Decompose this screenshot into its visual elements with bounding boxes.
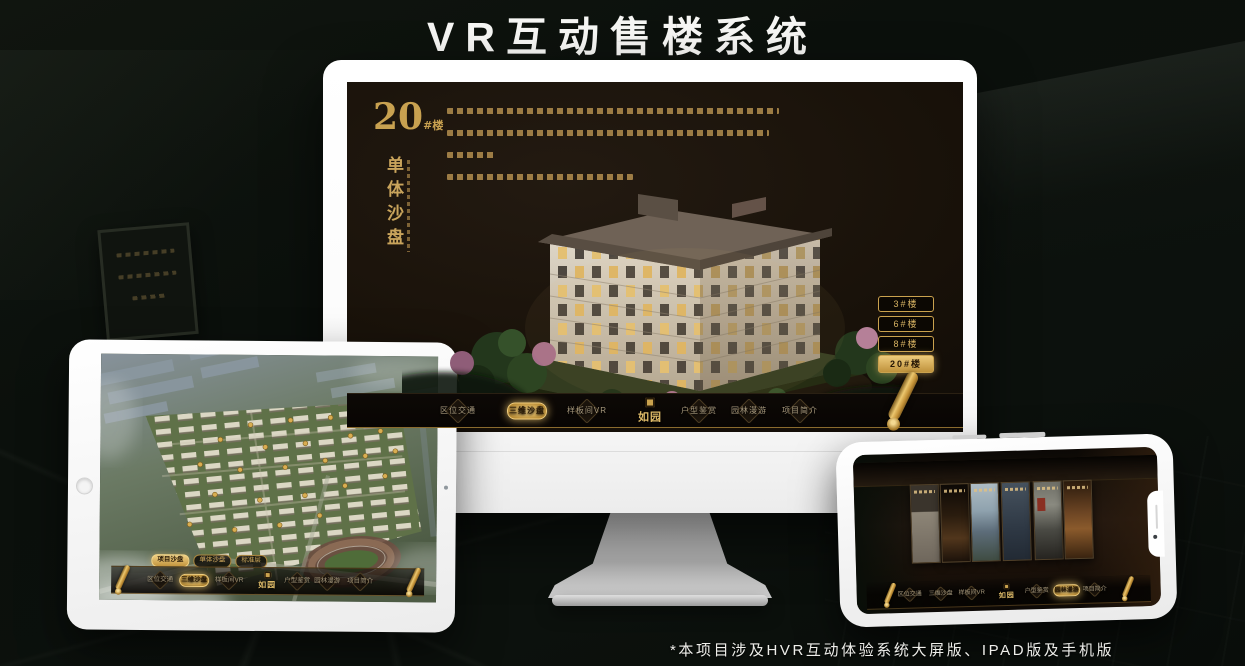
brand-seal-icon xyxy=(645,397,655,407)
gallery-panel[interactable] xyxy=(970,482,1001,562)
camera-icon xyxy=(1153,535,1157,539)
nav-item-label: 项目简介 xyxy=(347,575,373,589)
intro-text-line xyxy=(447,108,779,114)
footnote: *本项目涉及HVR互动体验系统大屏版、IPAD版及手机版 xyxy=(670,639,1114,660)
brand-logo[interactable]: 如园 xyxy=(998,583,1014,600)
nav-item-label: 三维沙盘 xyxy=(509,402,545,420)
nav-item-label: 项目简介 xyxy=(1083,583,1107,596)
panel-caption xyxy=(1067,486,1088,490)
nav-item-label: 户型鉴赏 xyxy=(1025,585,1049,598)
plaque-text-line xyxy=(116,249,174,258)
brand-name: 如园 xyxy=(638,408,662,424)
nav-item-label: 样板间VR xyxy=(567,402,607,420)
red-seal-tag xyxy=(1037,498,1045,511)
building-render-illustration xyxy=(402,148,907,423)
plaque-text-line xyxy=(132,293,166,300)
gallery-panel[interactable] xyxy=(910,484,941,564)
plaque-text-line xyxy=(118,271,176,280)
gallery-panel[interactable] xyxy=(940,483,971,563)
nav-item-project-intro[interactable]: 项目简介 xyxy=(1083,583,1107,596)
nav-item-showroom-vr[interactable]: 样板间VR xyxy=(215,574,244,588)
nav-item-3d-sandtable[interactable]: 三维沙盘 xyxy=(181,573,207,587)
monitor-nav-bar: 区位交通 三维沙盘 样板间VR 如园 户型鉴赏 xyxy=(347,393,963,428)
volume-button[interactable] xyxy=(952,435,986,440)
nav-item-label: 园林漫游 xyxy=(314,574,340,588)
nav-item-3d-sandtable[interactable]: 三维沙盘 xyxy=(929,588,953,601)
gallery-panel[interactable] xyxy=(1063,480,1094,560)
gallery-viewport[interactable]: 区位交通 三维沙盘 样板间VR 如园 户型鉴赏 xyxy=(853,447,1161,614)
scroll-handle-icon[interactable] xyxy=(1117,574,1139,603)
tablet-device: 项目沙盘 单体沙盘 标准层 区位交通 三维沙盘 样板间VR xyxy=(67,339,458,632)
nav-item-floorplans[interactable]: 户型鉴赏 xyxy=(1025,585,1049,598)
nav-item-3d-sandtable[interactable]: 三维沙盘 xyxy=(509,402,545,420)
nav-item-floorplans[interactable]: 户型鉴赏 xyxy=(681,402,717,420)
nav-item-label: 三维沙盘 xyxy=(181,573,207,587)
block-number-suffix: #楼 xyxy=(423,119,443,132)
brand-seal-icon xyxy=(1003,583,1009,589)
brand-name: 如园 xyxy=(258,579,276,590)
nav-item-label: 区位交通 xyxy=(440,402,476,420)
gallery-panel[interactable] xyxy=(1033,480,1064,560)
nav-item-location[interactable]: 区位交通 xyxy=(147,573,173,587)
nav-item-showroom-vr[interactable]: 样板间VR xyxy=(567,402,607,420)
nav-item-label: 园林漫游 xyxy=(731,402,767,420)
monitor-stand-base xyxy=(552,595,768,606)
panel-caption xyxy=(914,490,935,494)
nav-item-label: 区位交通 xyxy=(147,573,173,587)
panel-caption xyxy=(974,488,995,492)
block-subtitle: 单体沙盘 xyxy=(381,156,406,252)
nav-item-location[interactable]: 区位交通 xyxy=(440,402,476,420)
nav-item-location[interactable]: 区位交通 xyxy=(898,588,922,601)
panel-caption xyxy=(1037,487,1058,491)
nav-item-showroom-vr[interactable]: 样板间VR xyxy=(958,587,985,600)
nav-item-label: 样板间VR xyxy=(215,574,244,588)
block-subtitle-english-deco xyxy=(407,160,410,252)
nav-item-project-intro[interactable]: 项目简介 xyxy=(347,575,373,589)
speaker-icon xyxy=(1155,505,1158,529)
intro-text-line xyxy=(447,130,769,136)
nav-item-label: 户型鉴赏 xyxy=(681,402,717,420)
nav-item-label: 园林漫游 xyxy=(1055,584,1079,597)
panel-caption xyxy=(1005,487,1026,491)
phone-notch xyxy=(1147,491,1165,557)
nav-item-garden-tour[interactable]: 园林漫游 xyxy=(1055,584,1079,597)
nav-item-garden-tour[interactable]: 园林漫游 xyxy=(314,574,340,588)
scroll-handle-icon[interactable] xyxy=(400,565,427,599)
gallery-panel[interactable] xyxy=(1001,481,1032,561)
floor-button[interactable]: 3#楼 xyxy=(878,296,934,312)
nav-item-project-intro[interactable]: 项目简介 xyxy=(782,402,818,420)
phone-device: 区位交通 三维沙盘 样板间VR 如园 户型鉴赏 xyxy=(835,433,1177,627)
nav-item-label: 三维沙盘 xyxy=(929,588,953,601)
floor-button[interactable]: 6#楼 xyxy=(878,316,934,332)
scroll-handle-icon[interactable] xyxy=(109,563,136,597)
power-button[interactable] xyxy=(999,432,1045,438)
masterplan-map-viewport[interactable]: 项目沙盘 单体沙盘 标准层 区位交通 三维沙盘 样板间VR xyxy=(99,354,438,603)
sandtable-3d-viewport[interactable]: 20#楼 单体沙盘 xyxy=(347,82,963,432)
brand-name: 如园 xyxy=(999,590,1015,600)
nav-item-label: 区位交通 xyxy=(898,588,922,601)
camera-icon xyxy=(444,486,448,490)
promo-canvas: VR互动售楼系统 20#楼 单体沙盘 xyxy=(0,0,1245,666)
brand-logo[interactable]: 如园 xyxy=(258,571,276,590)
block-title: 20#楼 xyxy=(373,96,443,138)
nav-item-label: 项目简介 xyxy=(782,402,818,420)
nav-item-floorplans[interactable]: 户型鉴赏 xyxy=(284,574,310,588)
nav-item-garden-tour[interactable]: 园林漫游 xyxy=(731,402,767,420)
block-number: 20 xyxy=(373,96,423,138)
brand-logo[interactable]: 如园 xyxy=(638,397,662,424)
wall-plaque xyxy=(97,222,198,342)
tablet-nav-bar: 区位交通 三维沙盘 样板间VR 如园 户型鉴赏 xyxy=(111,566,424,597)
nav-item-label: 样板间VR xyxy=(958,587,985,600)
floor-button[interactable]: 8#楼 xyxy=(878,336,934,352)
brand-seal-icon xyxy=(264,572,271,579)
page-title: VR互动售楼系统 xyxy=(0,3,1245,63)
home-button[interactable] xyxy=(76,477,93,494)
nav-item-label: 户型鉴赏 xyxy=(284,574,310,588)
panel-caption xyxy=(944,489,965,493)
